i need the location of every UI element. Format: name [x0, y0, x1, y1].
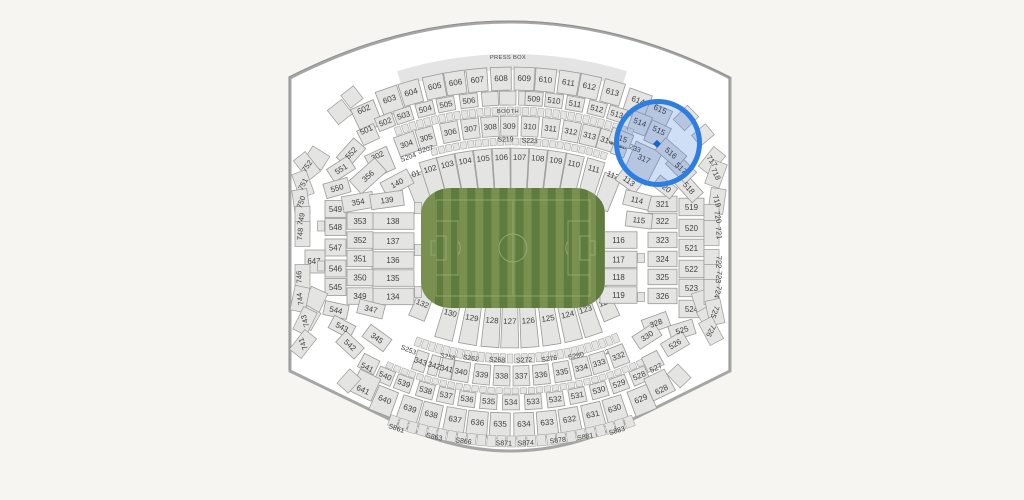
- svg-text:326: 326: [656, 292, 670, 301]
- svg-text:609: 609: [517, 74, 531, 83]
- svg-text:549: 549: [329, 205, 343, 214]
- svg-text:350: 350: [353, 273, 367, 282]
- svg-text:S871: S871: [496, 440, 513, 447]
- svg-text:532: 532: [548, 394, 562, 405]
- svg-text:533: 533: [526, 397, 540, 407]
- svg-text:324: 324: [656, 255, 670, 264]
- svg-text:548: 548: [329, 223, 343, 232]
- svg-text:126: 126: [521, 316, 535, 326]
- svg-text:351: 351: [353, 254, 366, 263]
- svg-text:610: 610: [538, 75, 553, 85]
- svg-text:325: 325: [656, 273, 670, 282]
- svg-text:522: 522: [685, 265, 698, 274]
- svg-text:S268: S268: [489, 357, 506, 365]
- svg-text:116: 116: [612, 236, 625, 245]
- svg-text:520: 520: [685, 224, 699, 233]
- svg-text:BOOTH: BOOTH: [497, 109, 519, 115]
- svg-text:108: 108: [531, 153, 546, 163]
- svg-text:721: 721: [714, 226, 724, 239]
- svg-text:136: 136: [386, 256, 400, 265]
- svg-text:139: 139: [380, 195, 395, 206]
- svg-text:321: 321: [656, 200, 669, 209]
- svg-text:127: 127: [503, 317, 516, 326]
- svg-text:523: 523: [685, 284, 699, 293]
- svg-text:119: 119: [612, 291, 625, 300]
- svg-text:534: 534: [504, 398, 518, 407]
- svg-text:608: 608: [494, 74, 508, 83]
- svg-text:135: 135: [386, 274, 400, 283]
- svg-text:115: 115: [632, 215, 646, 226]
- svg-text:607: 607: [470, 75, 485, 85]
- svg-text:105: 105: [476, 154, 491, 164]
- svg-text:128: 128: [485, 315, 499, 325]
- svg-text:338: 338: [495, 371, 509, 380]
- svg-text:509: 509: [527, 94, 541, 104]
- svg-text:137: 137: [386, 237, 399, 246]
- svg-text:748: 748: [295, 227, 305, 240]
- svg-text:633: 633: [540, 417, 555, 427]
- svg-text:310: 310: [523, 122, 537, 132]
- svg-text:118: 118: [612, 273, 625, 282]
- svg-text:746: 746: [294, 271, 304, 284]
- svg-text:339: 339: [475, 370, 490, 380]
- svg-text:311: 311: [544, 123, 558, 133]
- svg-text:107: 107: [513, 153, 526, 162]
- svg-text:309: 309: [503, 122, 517, 131]
- svg-text:722: 722: [714, 256, 723, 269]
- svg-text:636: 636: [470, 417, 485, 427]
- svg-text:S272: S272: [516, 357, 533, 365]
- svg-text:634: 634: [517, 419, 531, 428]
- svg-text:307: 307: [464, 124, 478, 135]
- svg-text:S219: S219: [497, 136, 513, 143]
- svg-text:519: 519: [685, 203, 699, 212]
- svg-text:521: 521: [685, 244, 698, 253]
- svg-text:510: 510: [547, 96, 562, 107]
- svg-text:635: 635: [493, 419, 507, 428]
- svg-text:106: 106: [495, 153, 509, 162]
- svg-text:134: 134: [386, 292, 400, 301]
- svg-text:138: 138: [386, 217, 400, 226]
- svg-text:506: 506: [462, 96, 477, 107]
- svg-text:353: 353: [353, 217, 367, 226]
- svg-text:S874: S874: [518, 440, 535, 448]
- svg-text:536: 536: [460, 394, 475, 405]
- svg-text:546: 546: [329, 264, 343, 273]
- svg-text:322: 322: [656, 217, 669, 226]
- svg-text:S223: S223: [521, 137, 538, 145]
- svg-text:723: 723: [714, 270, 725, 284]
- svg-text:PRESS BOX: PRESS BOX: [490, 55, 526, 61]
- svg-text:337: 337: [514, 371, 527, 380]
- svg-text:535: 535: [482, 396, 496, 406]
- svg-text:117: 117: [612, 255, 625, 264]
- svg-text:308: 308: [483, 122, 497, 132]
- svg-text:545: 545: [329, 283, 343, 292]
- svg-text:547: 547: [329, 243, 342, 252]
- svg-text:336: 336: [534, 370, 549, 380]
- svg-text:352: 352: [353, 236, 366, 245]
- svg-text:323: 323: [656, 236, 670, 245]
